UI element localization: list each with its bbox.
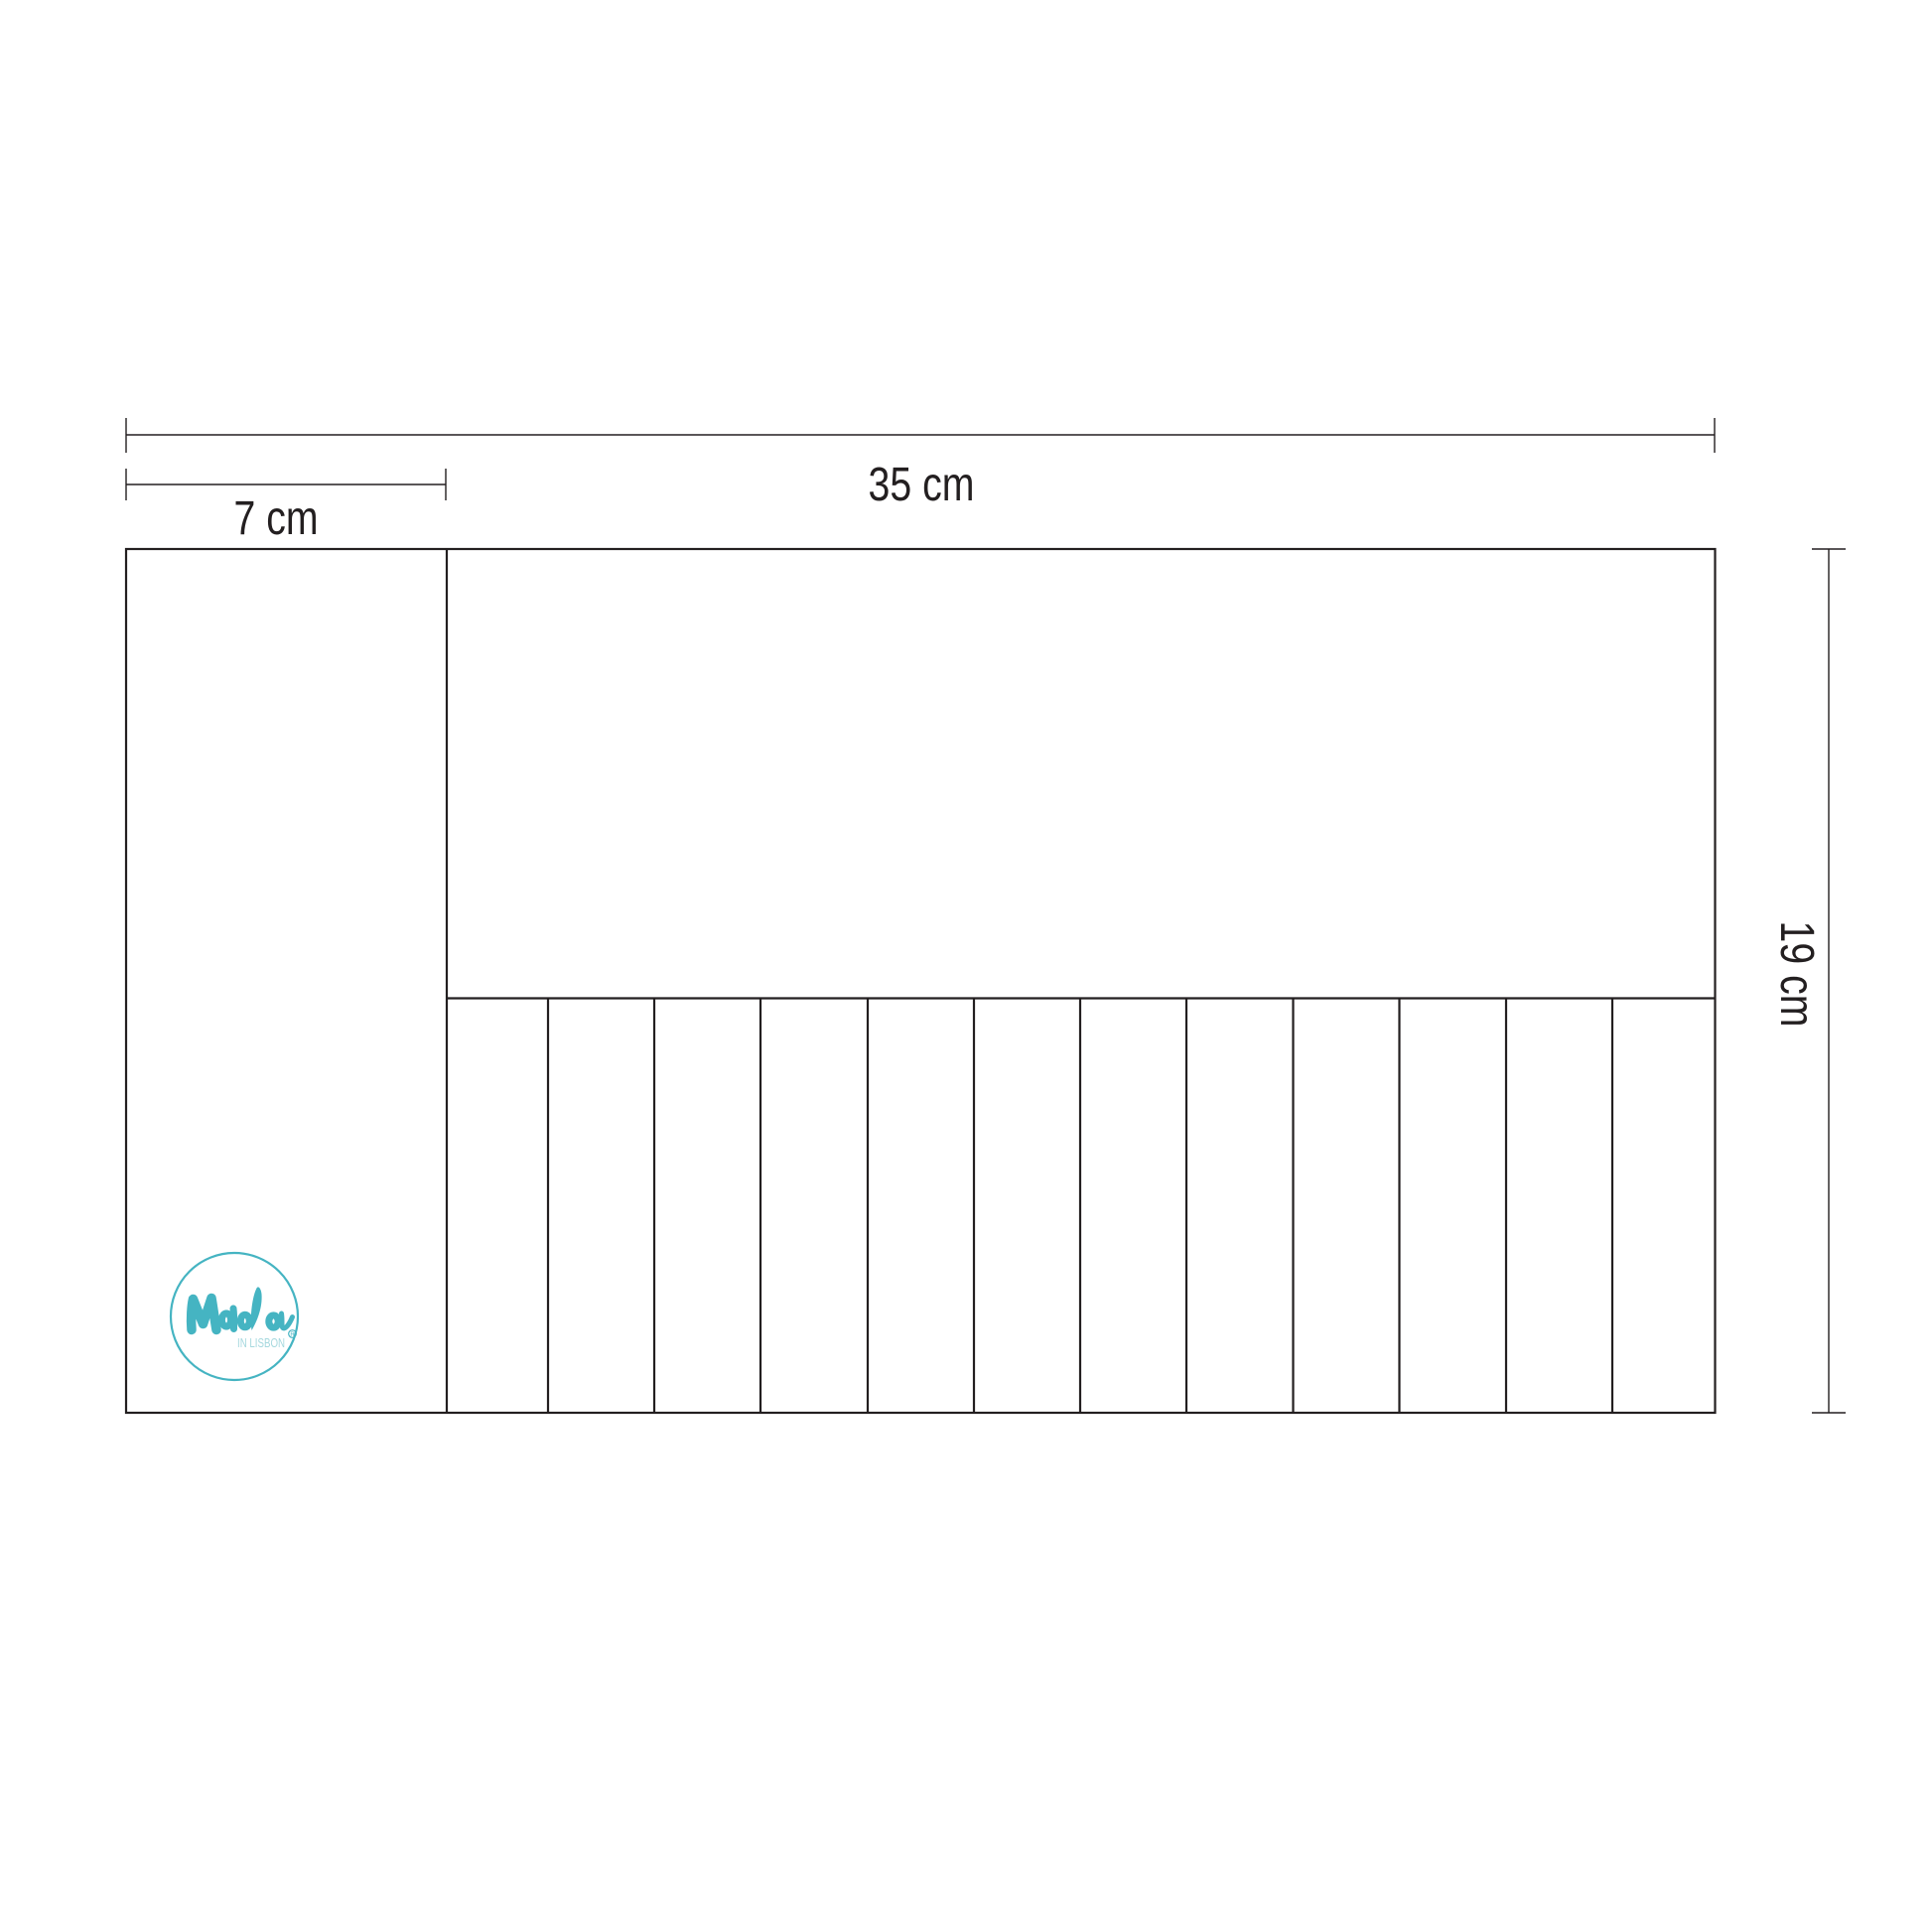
svg-text:35 cm: 35 cm <box>869 459 975 511</box>
svg-text:19 cm: 19 cm <box>1770 921 1823 1028</box>
svg-text:7 cm: 7 cm <box>234 492 319 545</box>
svg-text:R: R <box>290 1332 295 1338</box>
svg-text:IN LISBON: IN LISBON <box>237 1336 285 1350</box>
